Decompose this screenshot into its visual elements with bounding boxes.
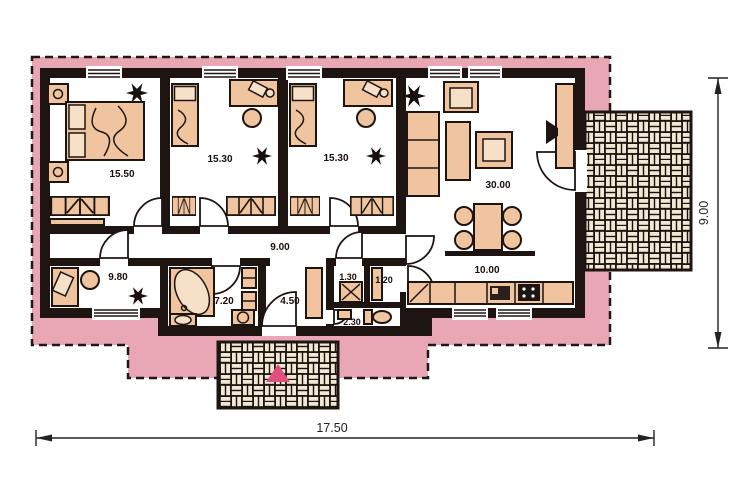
kitchen-counter	[408, 282, 573, 304]
sink	[518, 284, 540, 301]
label-hallway: 9.00	[270, 242, 290, 253]
dimension-width: 17.50	[36, 421, 654, 446]
dimension-width-label: 17.50	[316, 421, 347, 435]
window-bedroom-3	[286, 66, 322, 80]
window-bedroom-2	[202, 66, 238, 80]
side-table	[446, 122, 470, 180]
nightstand	[48, 162, 68, 182]
label-toilet: 2.30	[343, 317, 361, 327]
label-wc: 1.30	[339, 272, 357, 282]
entry-cabinet	[306, 268, 322, 318]
label-bathroom: 7.20	[214, 296, 234, 307]
sofa	[407, 112, 439, 196]
dimension-depth: 9.00	[697, 78, 728, 348]
window-living-1	[428, 66, 462, 80]
terrace	[585, 112, 691, 270]
window-kitchen-1	[452, 306, 488, 320]
chair	[455, 231, 473, 249]
floor-plan-page: 15.50 15.30 15.30 30.00 9.00 9.80 7.20 4…	[0, 0, 740, 494]
dimension-depth-label: 9.00	[697, 201, 711, 225]
window-living-2	[468, 66, 502, 80]
bench	[445, 251, 535, 256]
chair	[503, 207, 521, 225]
chair	[357, 109, 375, 127]
window-kitchen-2	[496, 306, 532, 320]
floor-plan-svg: 15.50 15.30 15.30 30.00 9.00 9.80 7.20 4…	[0, 0, 740, 494]
chair	[503, 231, 521, 249]
tv-cabinet	[556, 84, 574, 168]
wardrobe	[351, 197, 394, 215]
wardrobe	[290, 197, 319, 215]
wardrobe	[227, 197, 275, 215]
label-living-room: 30.00	[485, 180, 510, 191]
toilet-tank	[364, 310, 372, 324]
label-bedroom-2: 15.30	[207, 154, 232, 165]
window-study	[92, 306, 140, 320]
label-bedroom-3: 15.30	[323, 153, 348, 164]
chair	[455, 207, 473, 225]
label-study: 9.80	[108, 272, 128, 283]
wardrobe	[51, 197, 109, 215]
label-pantry: 1.20	[375, 275, 393, 285]
chair	[243, 109, 261, 127]
shelf	[50, 219, 104, 225]
entry-porch	[218, 342, 338, 408]
label-dining-kitchen: 10.00	[474, 265, 499, 276]
window-bedroom-1	[86, 66, 122, 80]
bathroom-fixtures	[167, 264, 256, 326]
wardrobe	[172, 197, 195, 215]
chair	[81, 271, 99, 289]
label-bedroom-1: 15.50	[109, 169, 134, 180]
toilet-bowl	[373, 311, 391, 323]
dining-table	[474, 204, 502, 250]
label-entry-hall: 4.50	[280, 296, 300, 307]
